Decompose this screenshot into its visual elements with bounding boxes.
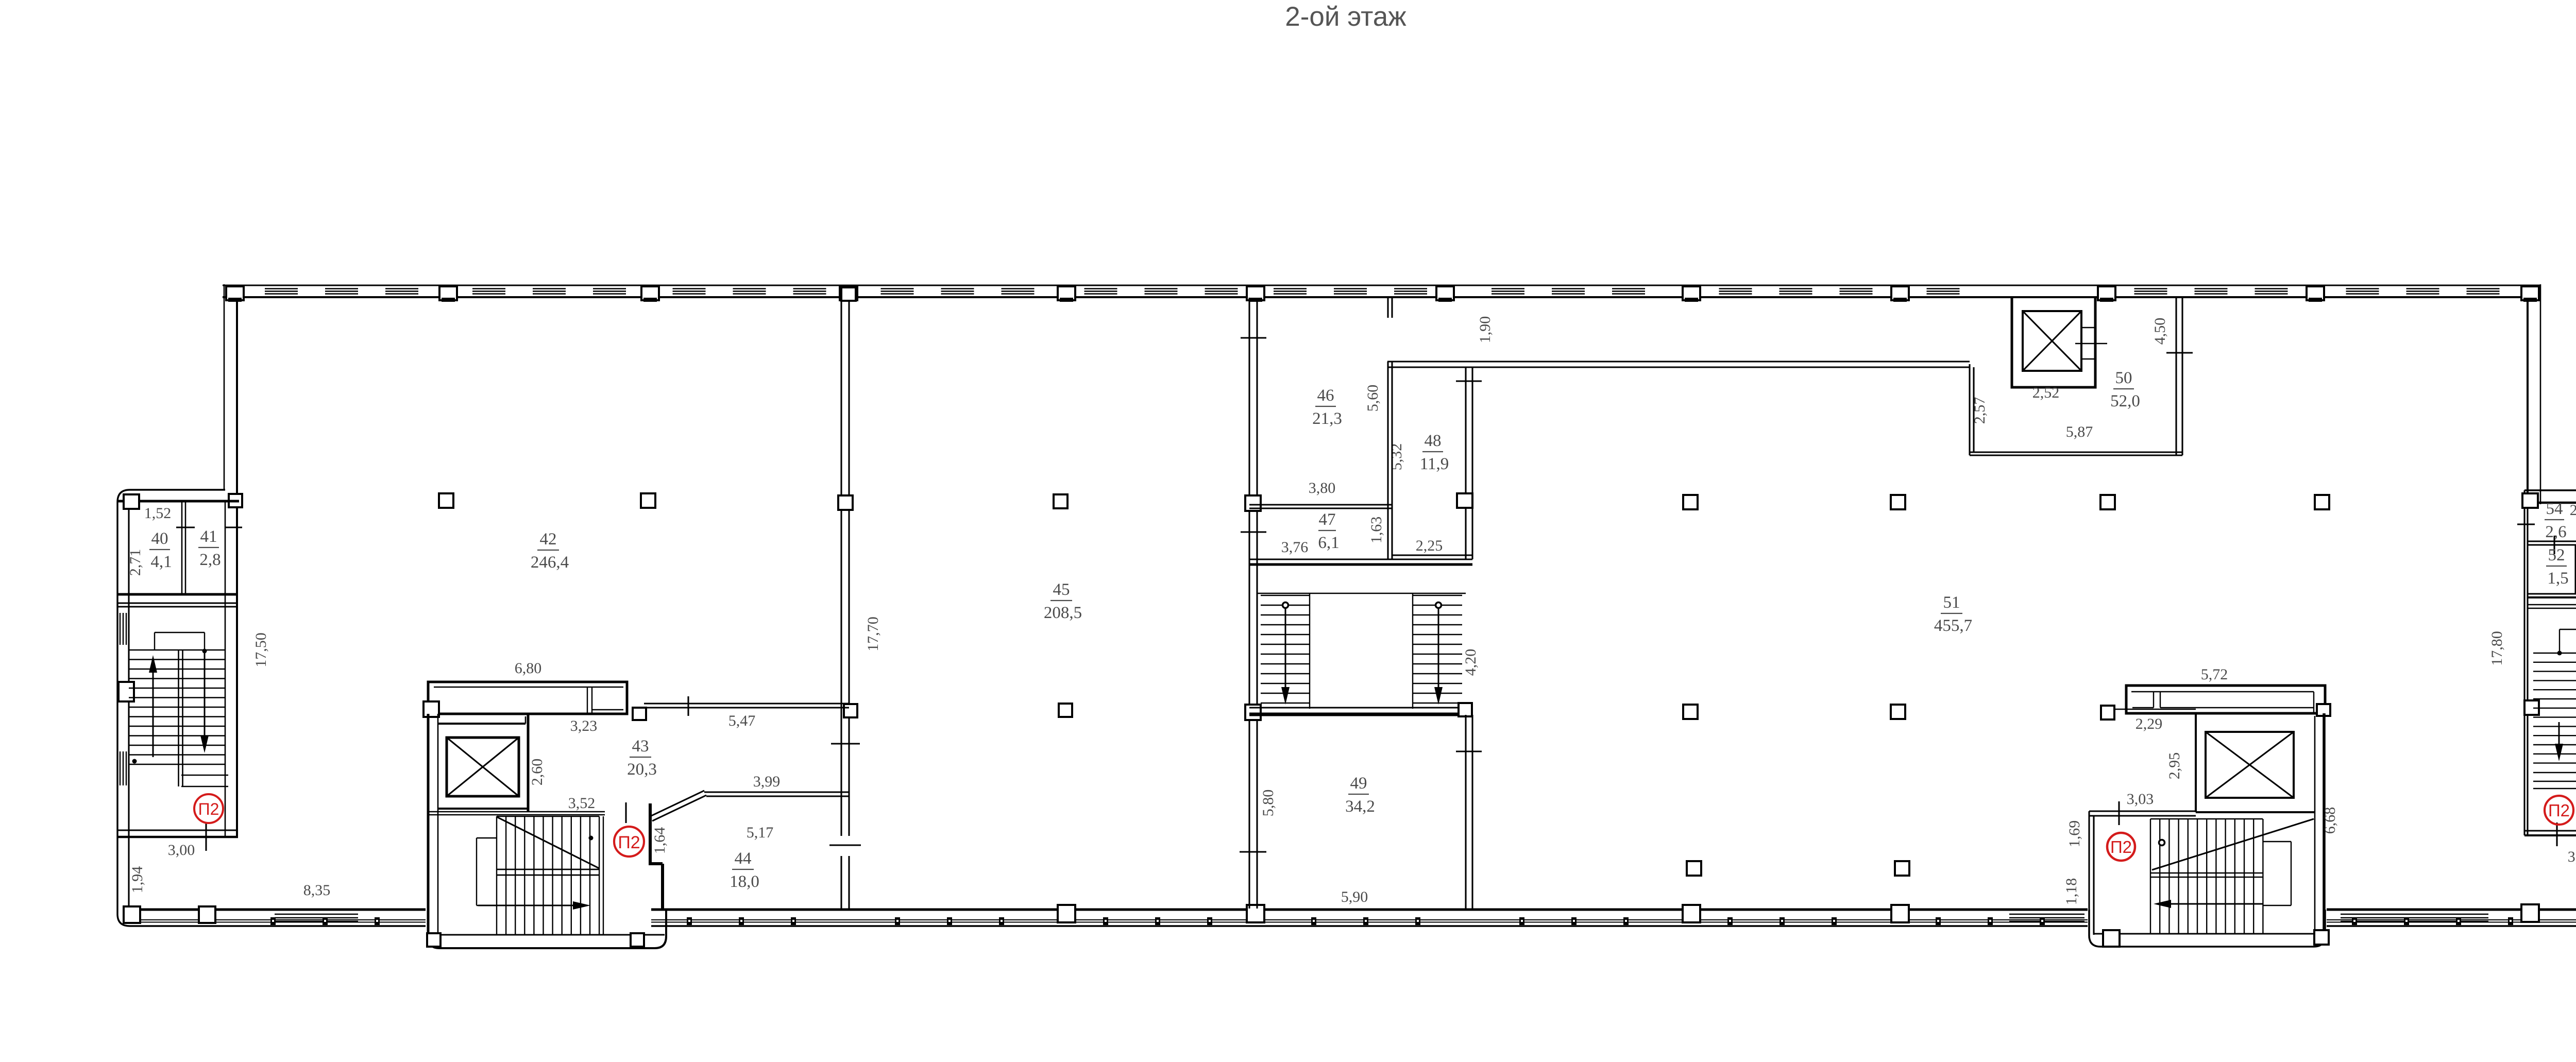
svg-text:5,80: 5,80 — [1260, 790, 1277, 817]
svg-text:3,76: 3,76 — [1281, 539, 1309, 556]
svg-text:8,35: 8,35 — [303, 882, 331, 899]
svg-text:П2: П2 — [2548, 801, 2570, 820]
svg-text:6,80: 6,80 — [515, 660, 542, 677]
svg-text:4,20: 4,20 — [1462, 649, 1479, 676]
svg-text:2,6: 2,6 — [2545, 523, 2566, 541]
svg-text:1,63: 1,63 — [1368, 517, 1385, 544]
svg-text:45: 45 — [1053, 580, 1070, 599]
svg-text:34,2: 34,2 — [1345, 797, 1375, 816]
svg-text:6,1: 6,1 — [1318, 534, 1339, 552]
svg-text:52: 52 — [2548, 546, 2565, 564]
svg-text:17,70: 17,70 — [865, 616, 882, 652]
svg-text:2,57: 2,57 — [1971, 397, 1988, 424]
svg-text:1,69: 1,69 — [2066, 820, 2083, 848]
svg-text:20,3: 20,3 — [627, 760, 657, 779]
svg-text:2,60: 2,60 — [529, 759, 546, 786]
svg-text:2,95: 2,95 — [2166, 752, 2183, 780]
svg-text:2,52: 2,52 — [2032, 384, 2060, 401]
svg-text:208,5: 208,5 — [1044, 604, 1082, 622]
svg-text:П2: П2 — [618, 833, 640, 852]
svg-text:1,64: 1,64 — [651, 827, 668, 854]
svg-text:5,90: 5,90 — [1341, 888, 1368, 905]
svg-text:3,23: 3,23 — [570, 717, 598, 734]
svg-text:51: 51 — [1943, 593, 1960, 612]
svg-text:П2: П2 — [198, 800, 219, 818]
svg-text:3,03: 3,03 — [2127, 791, 2154, 808]
svg-text:44: 44 — [735, 849, 752, 868]
svg-text:5,32: 5,32 — [1388, 443, 1405, 471]
svg-text:1,52: 1,52 — [144, 505, 172, 522]
svg-text:17,80: 17,80 — [2488, 631, 2505, 666]
svg-text:3,00: 3,00 — [2568, 848, 2576, 865]
svg-text:3,80: 3,80 — [1309, 479, 1336, 496]
svg-text:41: 41 — [200, 527, 217, 546]
svg-text:5,47: 5,47 — [728, 712, 756, 729]
svg-text:47: 47 — [1319, 510, 1336, 529]
svg-text:1,94: 1,94 — [129, 866, 146, 894]
svg-text:3,99: 3,99 — [753, 773, 781, 790]
svg-text:П2: П2 — [2110, 837, 2132, 857]
svg-text:3,52: 3,52 — [568, 795, 596, 812]
svg-text:5,17: 5,17 — [747, 824, 774, 841]
svg-text:1,18: 1,18 — [2063, 878, 2080, 905]
svg-text:4,1: 4,1 — [150, 553, 172, 571]
svg-text:2,29: 2,29 — [2136, 715, 2163, 732]
svg-text:50: 50 — [2115, 369, 2132, 387]
svg-text:43: 43 — [632, 737, 649, 756]
svg-text:455,7: 455,7 — [1934, 616, 1972, 635]
svg-text:5,72: 5,72 — [2201, 666, 2228, 683]
svg-text:4,50: 4,50 — [2151, 318, 2168, 345]
svg-text:48: 48 — [1425, 432, 1442, 450]
svg-text:2,8: 2,8 — [199, 551, 221, 569]
svg-text:1,5: 1,5 — [2547, 569, 2568, 588]
svg-text:5,87: 5,87 — [2066, 423, 2093, 440]
svg-text:11,9: 11,9 — [1420, 455, 1449, 473]
svg-text:40: 40 — [151, 529, 168, 548]
svg-text:54: 54 — [2546, 500, 2563, 518]
svg-text:2,63: 2,63 — [2570, 502, 2576, 519]
svg-text:17,50: 17,50 — [252, 632, 269, 667]
svg-text:6,68: 6,68 — [2321, 807, 2338, 834]
svg-text:42: 42 — [540, 530, 557, 549]
svg-text:49: 49 — [1350, 774, 1367, 793]
svg-text:52,0: 52,0 — [2110, 392, 2140, 410]
svg-text:1,90: 1,90 — [1477, 316, 1494, 344]
svg-text:21,3: 21,3 — [1312, 409, 1342, 428]
svg-text:2,25: 2,25 — [1416, 537, 1443, 554]
svg-text:5,60: 5,60 — [1364, 385, 1381, 412]
svg-text:46: 46 — [1317, 386, 1334, 405]
svg-text:246,4: 246,4 — [531, 553, 569, 572]
svg-text:2-ой этаж: 2-ой этаж — [1285, 2, 1406, 32]
svg-text:3,00: 3,00 — [168, 842, 195, 859]
svg-text:18,0: 18,0 — [730, 872, 759, 891]
svg-text:2,71: 2,71 — [127, 549, 144, 576]
